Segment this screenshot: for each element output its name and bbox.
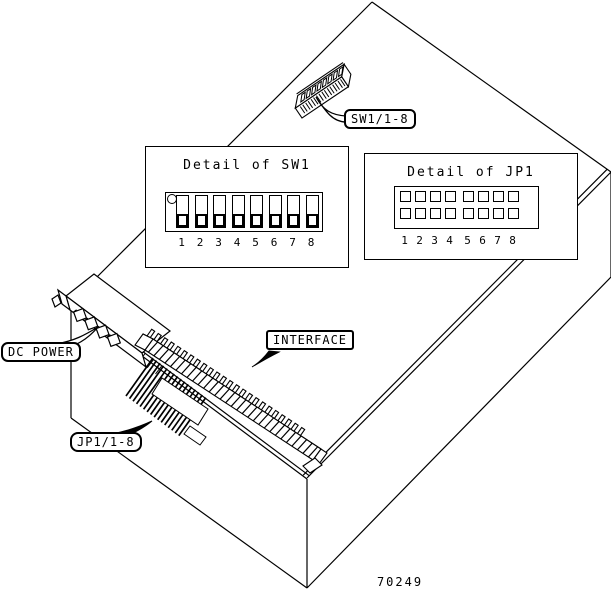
sw1-switch-lever — [288, 214, 299, 227]
jp1-pin-row — [400, 208, 538, 219]
sw1-switch-7 — [287, 195, 300, 228]
jp1-pin — [493, 191, 504, 202]
figure-number: 70249 — [350, 575, 450, 589]
jp1-position-number: 6 — [477, 235, 488, 247]
sw1-switch-5 — [250, 195, 263, 228]
sw1-switch-1 — [176, 195, 189, 228]
sw1-switch-lever — [251, 214, 262, 227]
jp1-position-number: 3 — [429, 235, 440, 247]
sw1-switch-3 — [213, 195, 226, 228]
callout-label-interface: INTERFACE — [266, 330, 354, 350]
jp1-pin — [478, 208, 489, 219]
callout-label-sw1: SW1/1-8 — [344, 109, 416, 129]
sw1-switch-lever — [233, 214, 244, 227]
sw1-switch-lever — [177, 214, 188, 227]
jp1-pin — [415, 191, 426, 202]
detail-jp1-title: Detail of JP1 — [365, 165, 577, 180]
jp1-pin — [508, 191, 519, 202]
jp1-pin — [430, 191, 441, 202]
jp1-pin — [463, 191, 474, 202]
jp1-pin — [430, 208, 441, 219]
sw1-position-number: 6 — [268, 237, 281, 249]
figure-canvas: Detail of SW1 12345678 Detail of JP1 123… — [0, 0, 611, 598]
jp1-pin — [415, 208, 426, 219]
jp1-pin — [445, 208, 456, 219]
jp1-position-number: 7 — [492, 235, 503, 247]
sw1-switch-lever — [307, 214, 318, 227]
jp1-pin — [463, 208, 474, 219]
jp1-position-number: 1 — [399, 235, 410, 247]
sw1-position-number: 1 — [175, 237, 188, 249]
sw1-position-number: 3 — [212, 237, 225, 249]
sw1-switch-2 — [195, 195, 208, 228]
sw1-switch-6 — [269, 195, 282, 228]
jp1-foot — [184, 426, 206, 445]
jp1-position-number: 5 — [462, 235, 473, 247]
jp1-pin — [445, 191, 456, 202]
jp1-pin-grid — [394, 186, 539, 229]
sw1-switch-slots — [176, 195, 319, 228]
sw1-switch-block — [165, 192, 323, 232]
jp1-pin — [493, 208, 504, 219]
sw1-position-number: 5 — [249, 237, 262, 249]
sw1-position-number: 2 — [194, 237, 207, 249]
jp1-position-number: 2 — [414, 235, 425, 247]
chassis-line-art — [0, 0, 611, 598]
detail-sw1-title: Detail of SW1 — [146, 158, 348, 173]
jp1-position-number: 8 — [507, 235, 518, 247]
sw1-switch-lever — [214, 214, 225, 227]
sw1-position-numbers: 12345678 — [175, 237, 318, 249]
jp1-pin — [478, 191, 489, 202]
sw1-switch-lever — [270, 214, 281, 227]
jp1-pin — [508, 208, 519, 219]
sw1-switch-8 — [306, 195, 319, 228]
interface-callout-tail — [252, 351, 279, 367]
jp1-pin — [400, 208, 411, 219]
sw1-position-number: 4 — [231, 237, 244, 249]
jp1-pin-row — [400, 191, 538, 202]
callout-label-dc-power: DC POWER — [1, 342, 81, 362]
sw1-position-number: 7 — [286, 237, 299, 249]
sw1-switch-lever — [196, 214, 207, 227]
detail-panel-jp1: Detail of JP1 12345678 — [364, 153, 578, 260]
jp1-pin — [400, 191, 411, 202]
callout-label-jp1: JP1/1-8 — [70, 432, 142, 452]
jp1-position-number: 4 — [444, 235, 455, 247]
sw1-position-number: 8 — [305, 237, 318, 249]
detail-panel-sw1: Detail of SW1 12345678 — [145, 146, 349, 268]
sw1-switch-4 — [232, 195, 245, 228]
jp1-position-numbers: 12345678 — [399, 235, 518, 247]
